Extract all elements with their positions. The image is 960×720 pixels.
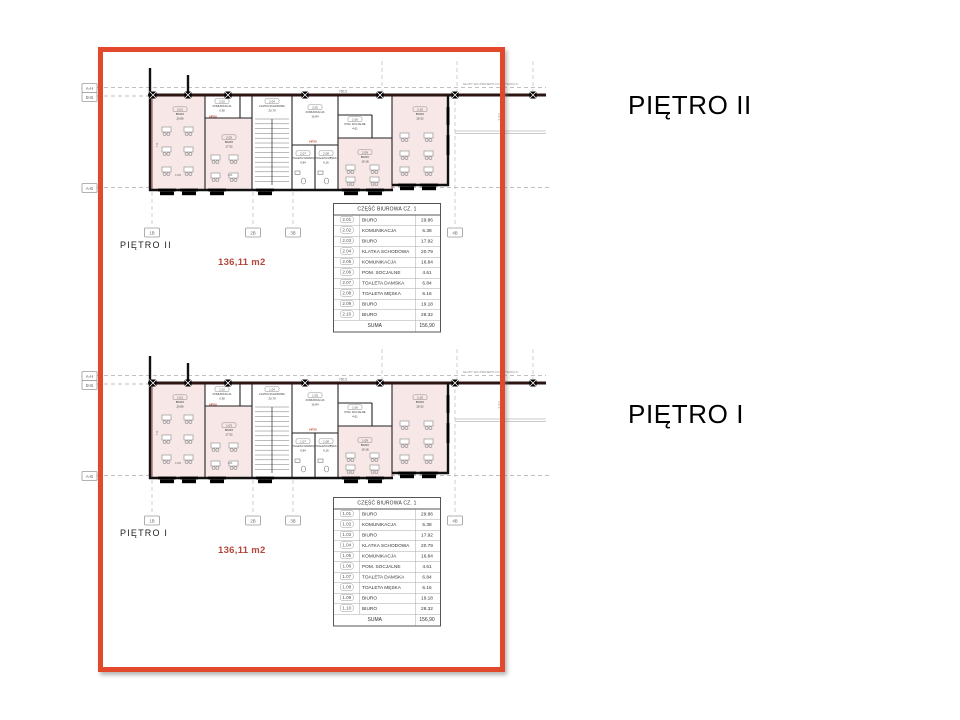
svg-text:KOMUNIKACJA: KOMUNIKACJA [213, 392, 232, 396]
svg-text:1.10: 1.10 [417, 395, 423, 399]
room-number: 1.02 [340, 521, 354, 528]
room-number: 2.03 [340, 237, 354, 244]
svg-text:TOALETA MĘSKA: TOALETA MĘSKA [315, 156, 337, 160]
svg-text:4165: 4165 [175, 173, 182, 177]
plan-label-pietro-2: PIĘTRO II [120, 240, 172, 250]
svg-text:2.08: 2.08 [323, 151, 329, 155]
sum-value: 156,90 [416, 615, 438, 626]
room-name: TOALETA MĘSKA [360, 289, 416, 299]
area-table-header: CZĘŚĆ BIUROWA CZ. 1 [334, 204, 440, 216]
room-area: 28.32 [416, 604, 438, 614]
table-row: 2.07TOALETA DAMSKA6.84 [334, 279, 440, 290]
room-name: BIURO [360, 300, 416, 310]
svg-text:HP25: HP25 [209, 115, 217, 119]
svg-text:BIURO: BIURO [225, 428, 233, 432]
room-name: TOALETA DAMSKA [360, 279, 416, 289]
table-row: 1.03BIURO17.92 [334, 531, 440, 542]
area-table-sum-row: SUMA 156,90 [334, 321, 440, 332]
svg-text:2.02: 2.02 [219, 99, 225, 103]
room-area: 29.86 [416, 510, 438, 520]
svg-text:2B: 2B [250, 519, 255, 524]
table-row: 1.07TOALETA DAMSKA6.84 [334, 573, 440, 584]
svg-text:1.06: 1.06 [352, 405, 358, 409]
floor-block-pietro-1: 1.01BIURO29.861.02KOMUNIKACJA6.381.03BIU… [80, 343, 680, 643]
room-name: KLATKA SCHODOWA [360, 541, 416, 551]
sum-label: SUMA [334, 321, 416, 332]
floor-title-pietro-1: PIĘTRO I [628, 399, 744, 430]
room-area: 6.38 [416, 520, 438, 530]
total-area-label-pietro-2: 136,11 m2 [218, 257, 266, 268]
svg-text:1.03: 1.03 [226, 423, 232, 427]
svg-text:1.04: 1.04 [269, 387, 275, 391]
room-number: 1.03 [340, 531, 354, 538]
svg-text:KLATKA SCHODOWA: KLATKA SCHODOWA [259, 392, 285, 396]
svg-text:TOALETA DAMSKA: TOALETA DAMSKA [291, 444, 314, 448]
svg-text:19.18: 19.18 [362, 160, 369, 164]
svg-text:4B: 4B [452, 231, 457, 236]
svg-text:BIURO: BIURO [361, 443, 369, 447]
svg-text:1B: 1B [149, 519, 154, 524]
svg-text:1.01: 1.01 [177, 395, 183, 399]
svg-text:760,5: 760,5 [339, 90, 347, 94]
room-1.08: 1.08TOALETA MĘSKA6.16 [315, 433, 338, 478]
svg-text:3B: 3B [290, 519, 295, 524]
table-row: 2.06POM. SOCJALNE4.61 [334, 268, 440, 279]
svg-text:6.84: 6.84 [300, 161, 306, 165]
table-row: 2.04KLATKA SCHODOWA20.79 [334, 247, 440, 258]
svg-text:A-H: A-H [86, 374, 94, 379]
area-table-pietro-1: CZĘŚĆ BIUROWA CZ. 1 1.01BIURO29.861.02KO… [333, 497, 441, 627]
table-row: 2.05KOMUNIKACJA16.84 [334, 258, 440, 269]
room-number: 2.06 [340, 269, 354, 276]
svg-text:6.16: 6.16 [323, 449, 329, 453]
room-number: 2.10 [340, 311, 354, 318]
table-row: 2.03BIURO17.92 [334, 237, 440, 248]
svg-text:6.38: 6.38 [219, 109, 225, 113]
svg-text:4.61: 4.61 [352, 415, 358, 419]
svg-text:B-B: B-B [86, 383, 93, 388]
svg-text:16.84: 16.84 [312, 403, 319, 407]
room-name: BIURO [360, 604, 416, 614]
svg-text:29.86: 29.86 [177, 405, 184, 409]
room-2.05: 2.05KOMUNIKACJA16.84 [292, 96, 338, 145]
table-row: 2.02KOMUNIKACJA6.38 [334, 226, 440, 237]
area-table-header: CZĘŚĆ BIUROWA CZ. 1 [334, 498, 440, 510]
room-name: BIURO [360, 510, 416, 520]
room-area: 6.84 [416, 573, 438, 583]
svg-text:POM. SOCJALNE: POM. SOCJALNE [344, 122, 365, 126]
table-row: 2.09BIURO19.18 [334, 300, 440, 311]
svg-text:TOALETA DAMSKA: TOALETA DAMSKA [291, 156, 314, 160]
svg-text:28.32: 28.32 [417, 117, 424, 121]
svg-text:HP25: HP25 [209, 403, 217, 407]
room-name: BIURO [360, 594, 416, 604]
room-2.09: 2.09BIURO19.18 [338, 138, 392, 190]
room-1.09: 1.09BIURO19.18 [338, 426, 392, 478]
room-2.10: 2.10BIURO28.32 [392, 96, 448, 185]
svg-text:KLATKA SCHODOWA: KLATKA SCHODOWA [259, 104, 285, 108]
room-number: 1.05 [340, 552, 354, 559]
area-table-body: 2.01BIURO29.862.02KOMUNIKACJA6.382.03BIU… [334, 216, 440, 321]
room-name: KOMUNIKACJA [360, 226, 416, 236]
svg-text:712: 712 [155, 430, 159, 435]
svg-text:2.04: 2.04 [269, 99, 275, 103]
svg-text:2.05: 2.05 [312, 105, 318, 109]
room-area: 16.84 [416, 258, 438, 268]
table-row: 1.04KLATKA SCHODOWA20.79 [334, 541, 440, 552]
room-area: 28.32 [416, 310, 438, 320]
svg-text:BIURO: BIURO [225, 140, 233, 144]
room-area: 16.84 [416, 552, 438, 562]
svg-text:6.16: 6.16 [323, 161, 329, 165]
svg-text:POM. SOCJALNE: POM. SOCJALNE [344, 410, 365, 414]
room-1.05: 1.05KOMUNIKACJA16.84 [292, 384, 338, 433]
table-row: 1.01BIURO29.86 [334, 510, 440, 521]
svg-text:2B: 2B [250, 231, 255, 236]
svg-text:2.03: 2.03 [226, 135, 232, 139]
svg-text:17.92: 17.92 [226, 433, 233, 437]
table-row: 1.09BIURO19.18 [334, 594, 440, 605]
svg-text:2.06: 2.06 [352, 117, 358, 121]
floor-plan-pietro-1-drawing: 1.01BIURO29.861.02KOMUNIKACJA6.381.03BIU… [80, 343, 560, 583]
table-row: 1.05KOMUNIKACJA16.84 [334, 552, 440, 563]
svg-text:BIURO: BIURO [416, 112, 424, 116]
svg-text:3B: 3B [290, 231, 295, 236]
table-row: 2.08TOALETA MĘSKA6.16 [334, 289, 440, 300]
room-name: KOMUNIKACJA [360, 552, 416, 562]
svg-text:28.32: 28.32 [417, 405, 424, 409]
svg-text:6.38: 6.38 [219, 397, 225, 401]
table-row: 1.02KOMUNIKACJA6.38 [334, 520, 440, 531]
room-2.07: 2.07TOALETA DAMSKA6.84 [291, 145, 315, 190]
area-table-sum-row: SUMA 156,90 [334, 615, 440, 626]
room-area: 20.79 [416, 541, 438, 551]
room-number: 2.09 [340, 300, 354, 307]
svg-text:6.84: 6.84 [300, 449, 306, 453]
svg-text:4.61: 4.61 [352, 127, 358, 131]
svg-text:1B: 1B [149, 231, 154, 236]
room-name: BIURO [360, 216, 416, 226]
room-area: 6.38 [416, 226, 438, 236]
svg-text:SŁUPY WG PROJEKTU KONSTRUKCJI: SŁUPY WG PROJEKTU KONSTRUKCJI [463, 82, 518, 86]
room-number: 1.08 [340, 584, 354, 591]
svg-text:A-B: A-B [86, 474, 93, 479]
svg-text:BIURO: BIURO [361, 155, 369, 159]
room-area: 4.61 [416, 268, 438, 278]
room-area: 6.16 [416, 583, 438, 593]
svg-text:B-B: B-B [86, 95, 93, 100]
room-area: 17.92 [416, 531, 438, 541]
area-table-body: 1.01BIURO29.861.02KOMUNIKACJA6.381.03BIU… [334, 510, 440, 615]
svg-text:20.79: 20.79 [269, 109, 276, 113]
room-2.04: 2.04KLATKA SCHODOWA20.79 [252, 96, 292, 190]
svg-text:A-H: A-H [86, 86, 94, 91]
svg-text:A-B: A-B [86, 186, 93, 191]
room-number: 2.01 [340, 216, 354, 223]
room-area: 4.61 [416, 562, 438, 572]
room-number: 2.07 [340, 279, 354, 286]
room-name: BIURO [360, 237, 416, 247]
svg-text:1.05: 1.05 [312, 393, 318, 397]
svg-text:17.92: 17.92 [226, 145, 233, 149]
svg-text:16.84: 16.84 [312, 115, 319, 119]
room-number: 1.10 [340, 605, 354, 612]
svg-text:345: 345 [228, 173, 233, 177]
room-area: 20.79 [416, 247, 438, 257]
svg-text:HP25: HP25 [309, 428, 317, 432]
svg-text:BIURO: BIURO [176, 400, 184, 404]
room-area: 29.86 [416, 216, 438, 226]
floor-block-pietro-2: 2.01BIURO29.862.02KOMUNIKACJA6.382.03BIU… [80, 55, 680, 355]
svg-text:1.09: 1.09 [362, 438, 368, 442]
svg-text:KOMUNIKACJA: KOMUNIKACJA [306, 398, 325, 402]
room-1.04: 1.04KLATKA SCHODOWA20.79 [252, 384, 292, 478]
table-row: 1.08TOALETA MĘSKA6.16 [334, 583, 440, 594]
room-number: 1.07 [340, 573, 354, 580]
room-name: POM. SOCJALNE [360, 268, 416, 278]
room-2.03: 2.03BIURO17.92 [205, 118, 252, 190]
table-row: 2.10BIURO28.32 [334, 310, 440, 321]
room-number: 1.09 [340, 594, 354, 601]
room-name: TOALETA MĘSKA [360, 583, 416, 593]
room-area: 6.16 [416, 289, 438, 299]
room-area: 19.18 [416, 594, 438, 604]
room-1.03: 1.03BIURO17.92 [205, 406, 252, 478]
svg-text:345: 345 [228, 461, 233, 465]
room-1.10: 1.10BIURO28.32 [392, 384, 448, 473]
slide-canvas: 2.01BIURO29.862.02KOMUNIKACJA6.382.03BIU… [0, 0, 960, 720]
plan-label-pietro-1: PIĘTRO I [120, 528, 168, 538]
svg-text:KOMUNIKACJA: KOMUNIKACJA [213, 104, 232, 108]
svg-text:BIURO: BIURO [416, 400, 424, 404]
room-name: KOMUNIKACJA [360, 258, 416, 268]
svg-text:2.07: 2.07 [300, 151, 306, 155]
svg-text:19.18: 19.18 [362, 448, 369, 452]
room-name: POM. SOCJALNE [360, 562, 416, 572]
room-number: 2.04 [340, 248, 354, 255]
room-name: TOALETA DAMSKA [360, 573, 416, 583]
room-1.07: 1.07TOALETA DAMSKA6.84 [291, 433, 315, 478]
svg-text:29.86: 29.86 [177, 117, 184, 121]
svg-text:712: 712 [155, 142, 159, 147]
svg-text:7,57: 7,57 [497, 112, 502, 121]
svg-text:BIURO: BIURO [176, 112, 184, 116]
table-row: 1.06POM. SOCJALNE4.61 [334, 562, 440, 573]
svg-text:HP25: HP25 [309, 140, 317, 144]
room-name: KLATKA SCHODOWA [360, 247, 416, 257]
svg-text:20.79: 20.79 [269, 397, 276, 401]
svg-text:760,5: 760,5 [339, 378, 347, 382]
svg-text:4165: 4165 [175, 461, 182, 465]
svg-text:7,57: 7,57 [497, 400, 502, 409]
room-number: 2.02 [340, 227, 354, 234]
total-area-label-pietro-1: 136,11 m2 [218, 545, 266, 556]
room-2.08: 2.08TOALETA MĘSKA6.16 [315, 145, 338, 190]
room-area: 6.84 [416, 279, 438, 289]
floor-plan-pietro-2-drawing: 2.01BIURO29.862.02KOMUNIKACJA6.382.03BIU… [80, 55, 560, 295]
room-area: 17.92 [416, 237, 438, 247]
room-area: 19.18 [416, 300, 438, 310]
svg-text:TOALETA MĘSKA: TOALETA MĘSKA [315, 444, 337, 448]
svg-text:1.08: 1.08 [323, 439, 329, 443]
svg-text:1.02: 1.02 [219, 387, 225, 391]
svg-text:2.10: 2.10 [417, 107, 423, 111]
room-name: BIURO [360, 531, 416, 541]
table-row: 1.10BIURO28.32 [334, 604, 440, 615]
room-number: 1.06 [340, 563, 354, 570]
room-number: 2.08 [340, 290, 354, 297]
floor-title-pietro-2: PIĘTRO II [628, 90, 752, 121]
svg-text:1.07: 1.07 [300, 439, 306, 443]
svg-text:4B: 4B [452, 519, 457, 524]
sum-value: 156,90 [416, 321, 438, 332]
sum-label: SUMA [334, 615, 416, 626]
svg-text:KOMUNIKACJA: KOMUNIKACJA [306, 110, 325, 114]
room-2.06: 2.06POM. SOCJALNE4.61 [338, 115, 372, 138]
svg-text:2.01: 2.01 [177, 107, 183, 111]
svg-text:SŁUPY WG PROJEKTU KONSTRUKCJI: SŁUPY WG PROJEKTU KONSTRUKCJI [463, 370, 518, 374]
room-number: 2.05 [340, 258, 354, 265]
area-table-pietro-2: CZĘŚĆ BIUROWA CZ. 1 2.01BIURO29.862.02KO… [333, 203, 441, 333]
table-row: 2.01BIURO29.86 [334, 216, 440, 227]
room-number: 1.04 [340, 542, 354, 549]
room-number: 1.01 [340, 510, 354, 517]
room-name: BIURO [360, 310, 416, 320]
room-name: KOMUNIKACJA [360, 520, 416, 530]
svg-text:2.09: 2.09 [362, 150, 368, 154]
room-1.06: 1.06POM. SOCJALNE4.61 [338, 403, 372, 426]
